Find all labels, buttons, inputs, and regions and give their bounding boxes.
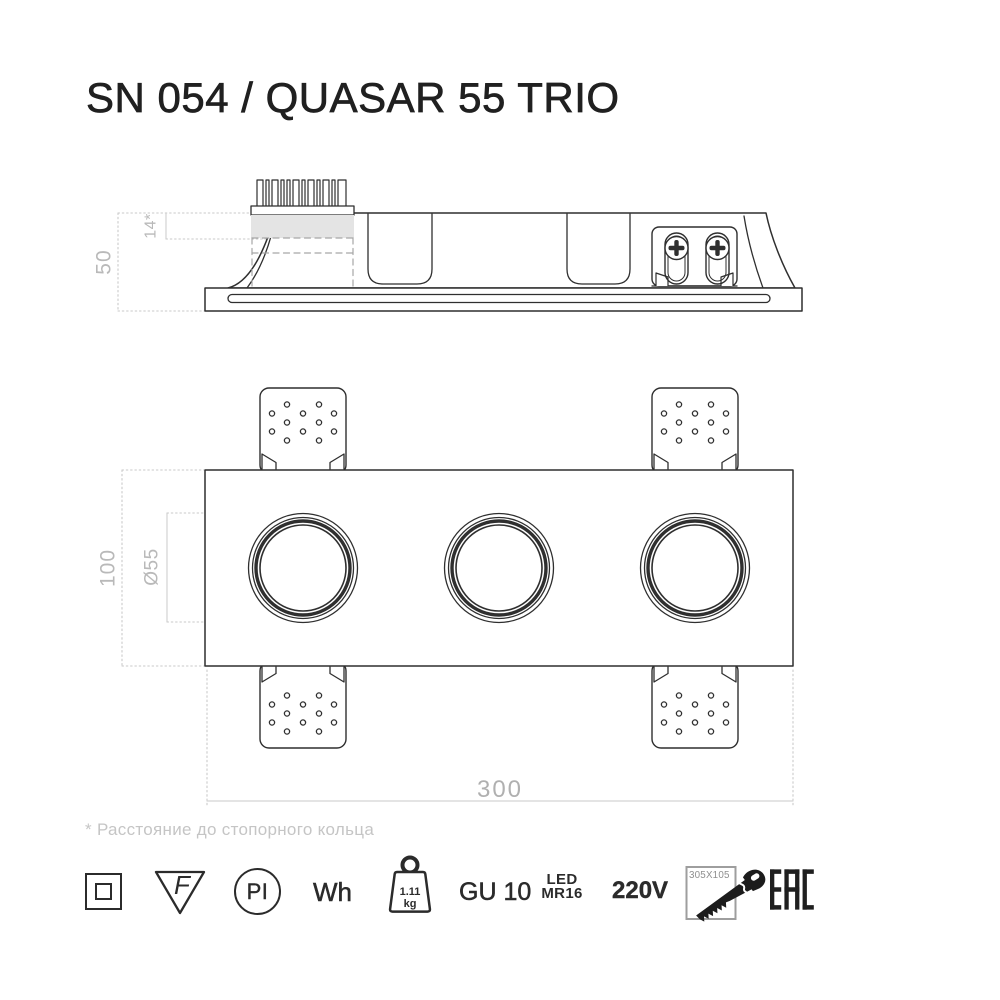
footnote: * Расстояние до стопорного кольца bbox=[85, 820, 374, 840]
cutout-saw-icon: 305X105 bbox=[685, 863, 769, 925]
dim-label-hole-diameter: Ø55 bbox=[142, 548, 163, 585]
pi-circle-icon: PI bbox=[234, 868, 281, 915]
weight-icon: 1.11 kg bbox=[384, 855, 436, 915]
spec-sheet: SN 054 / QUASAR 55 TRIO bbox=[0, 0, 1000, 1000]
eac-certification-icon bbox=[770, 868, 814, 911]
front-view: 100 Ø55 300 bbox=[97, 388, 794, 806]
f-mark-icon: F bbox=[154, 870, 206, 915]
color-white-label: Wh bbox=[313, 877, 352, 908]
dim-label-width: 300 bbox=[477, 776, 523, 803]
weight-unit: kg bbox=[404, 898, 417, 910]
weight-handle-ring bbox=[403, 858, 418, 873]
terminal-screw bbox=[665, 237, 688, 260]
front-plate bbox=[205, 470, 793, 666]
cutout-size-label: 305X105 bbox=[689, 870, 730, 881]
heatsink-fins bbox=[257, 180, 346, 207]
class-ii-insulation-icon bbox=[85, 873, 122, 910]
dim-label-front-height: 100 bbox=[97, 549, 120, 587]
socket-type-label: GU 10 bbox=[459, 878, 531, 907]
class-ii-inner-square bbox=[95, 883, 112, 900]
lamp-type-line2: MR16 bbox=[538, 887, 586, 901]
heatsink-base bbox=[251, 206, 354, 215]
dim-label-protrusion: 14* bbox=[143, 213, 160, 239]
voltage-label: 220V bbox=[612, 877, 668, 905]
dim-label-height: 50 bbox=[93, 249, 116, 274]
terminal-block bbox=[652, 227, 737, 286]
terminal-screw bbox=[706, 237, 729, 260]
pi-label: PI bbox=[247, 879, 269, 905]
side-view: 50 14* bbox=[93, 180, 803, 311]
base-flange bbox=[205, 288, 802, 311]
hidden-lamp-body bbox=[251, 215, 354, 238]
technical-drawing: 50 14* bbox=[0, 0, 1000, 1000]
weight-value: 1.11 bbox=[400, 886, 421, 898]
f-mark-label: F bbox=[174, 870, 192, 900]
lamp-type-label: LED MR16 bbox=[538, 873, 586, 901]
